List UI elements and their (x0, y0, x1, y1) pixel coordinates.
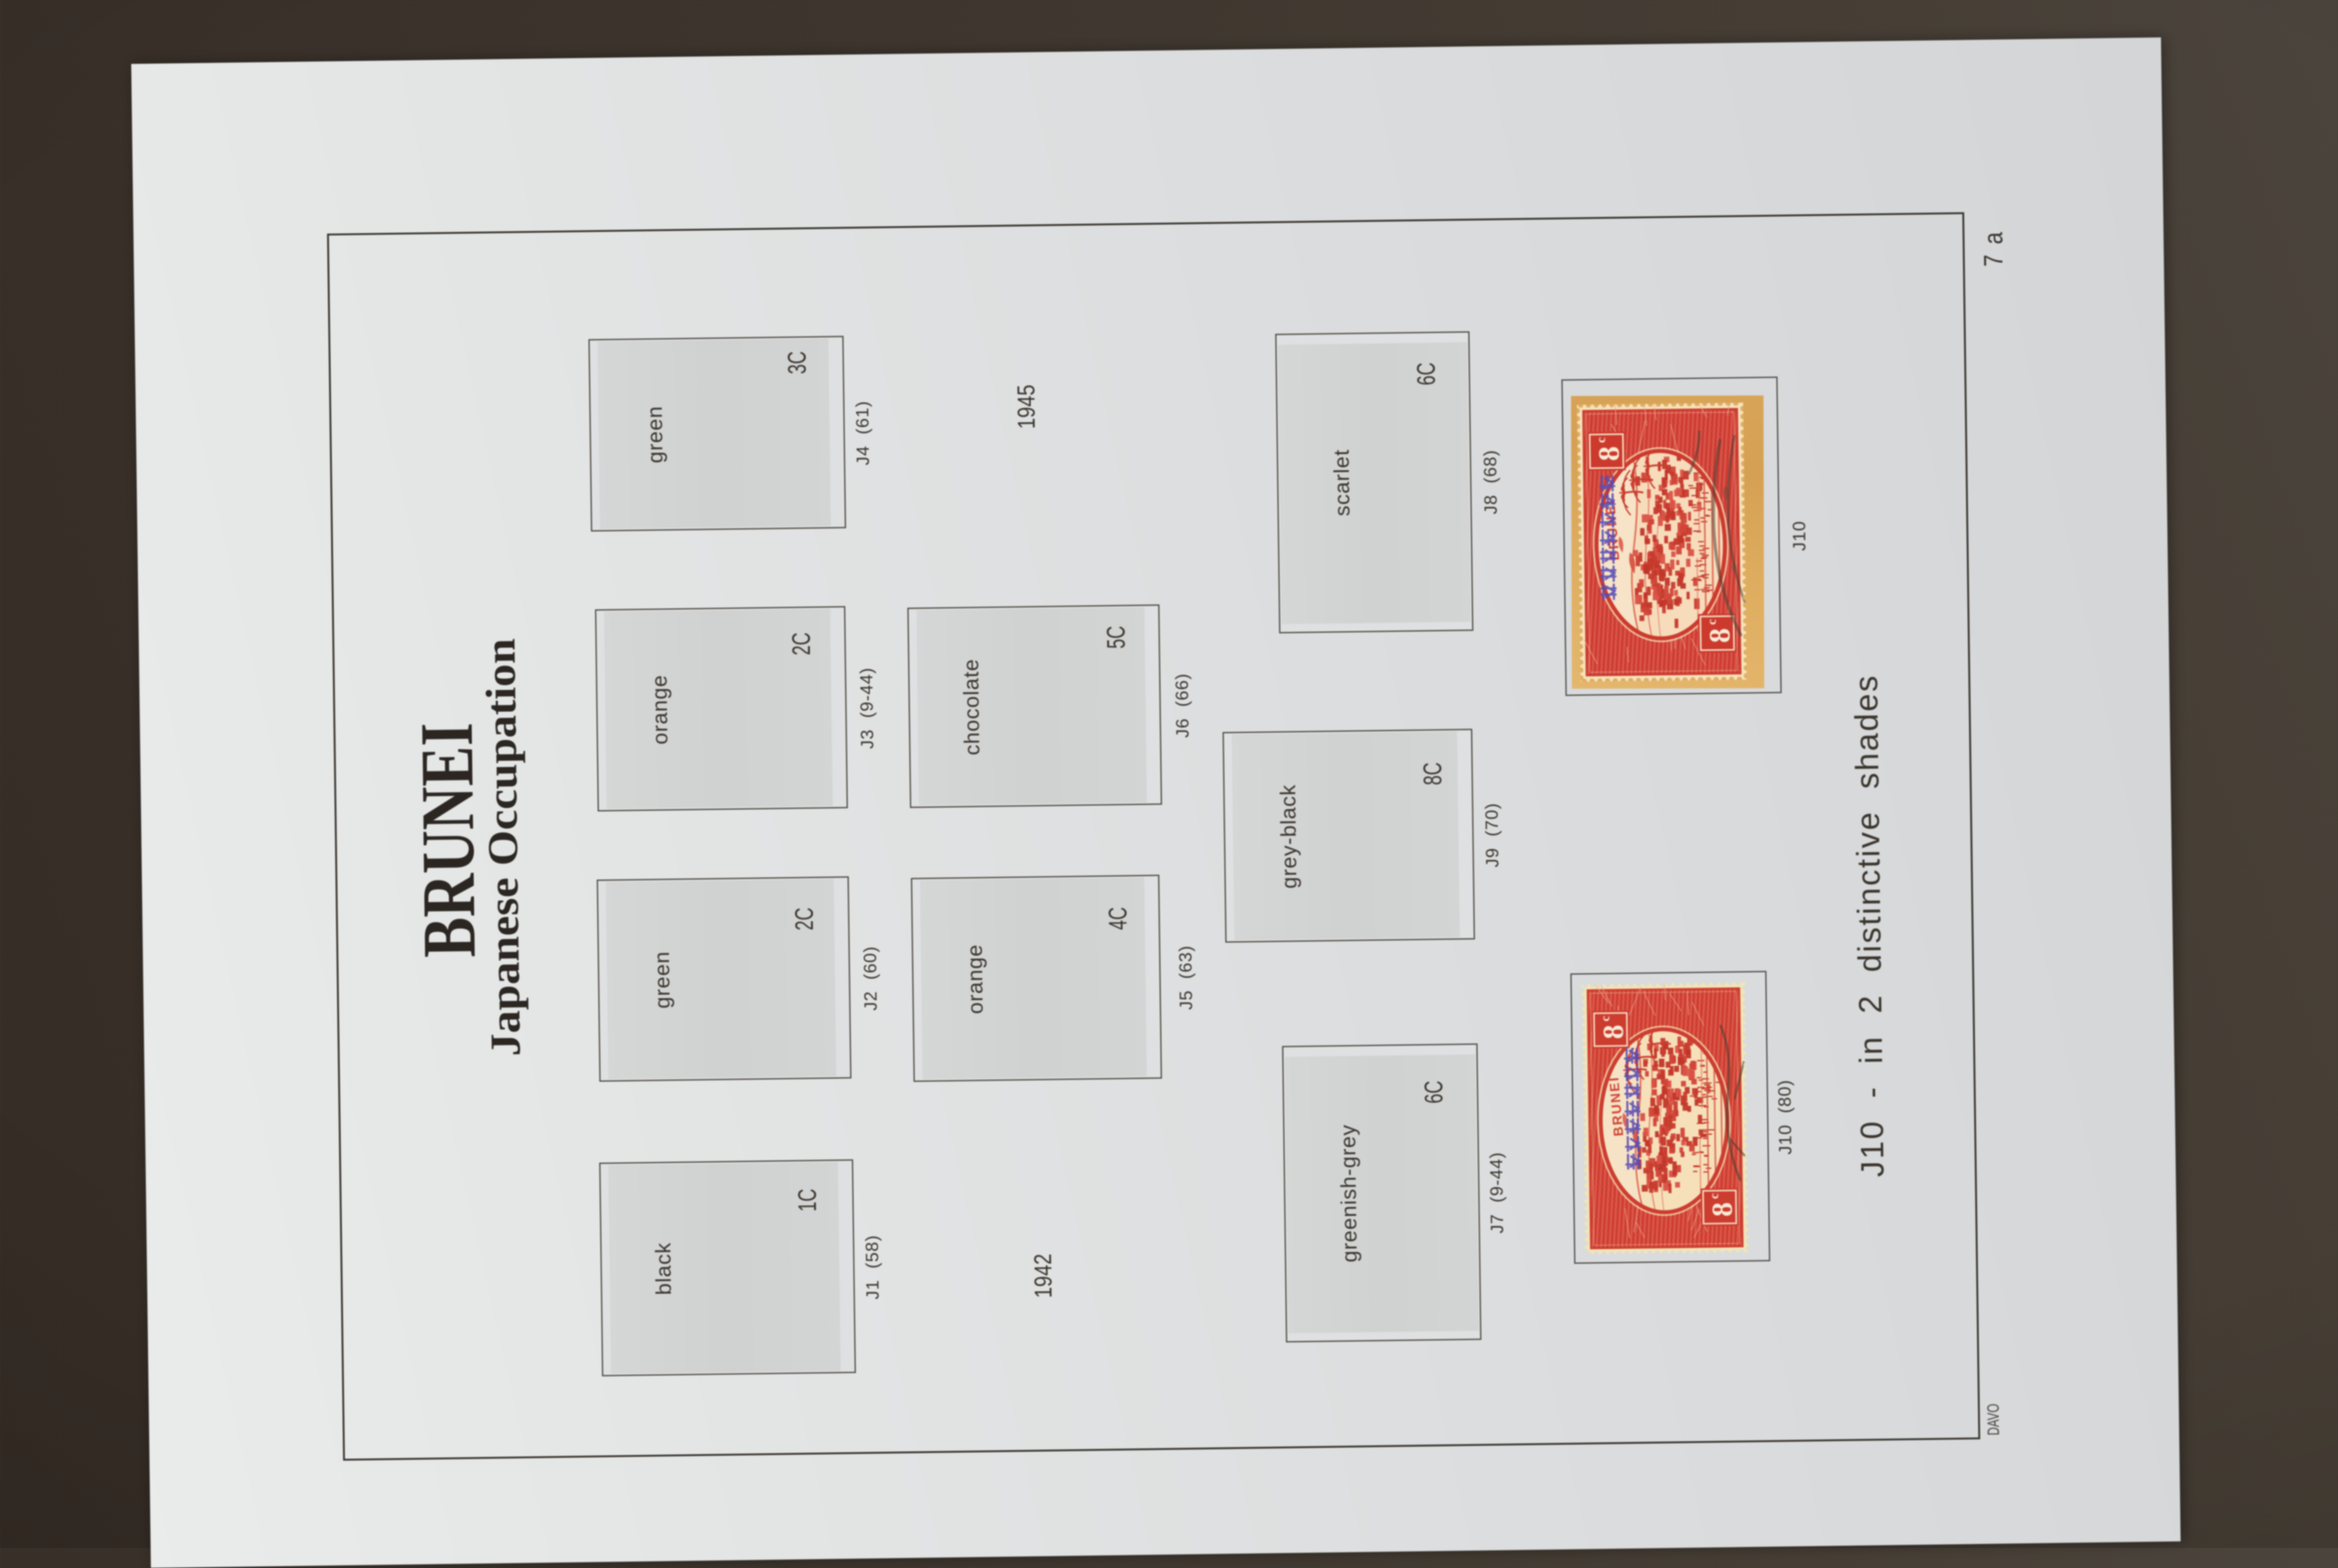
svg-text:c: c (1707, 1193, 1721, 1199)
svg-text:8: 8 (1592, 446, 1626, 461)
svg-text:8: 8 (1706, 1202, 1738, 1217)
svg-text:8: 8 (1703, 628, 1736, 643)
svg-text:c: c (1704, 619, 1719, 625)
svg-text:c: c (1593, 437, 1608, 443)
svg-text:c: c (1598, 1016, 1612, 1022)
svg-text:8: 8 (1597, 1024, 1629, 1040)
